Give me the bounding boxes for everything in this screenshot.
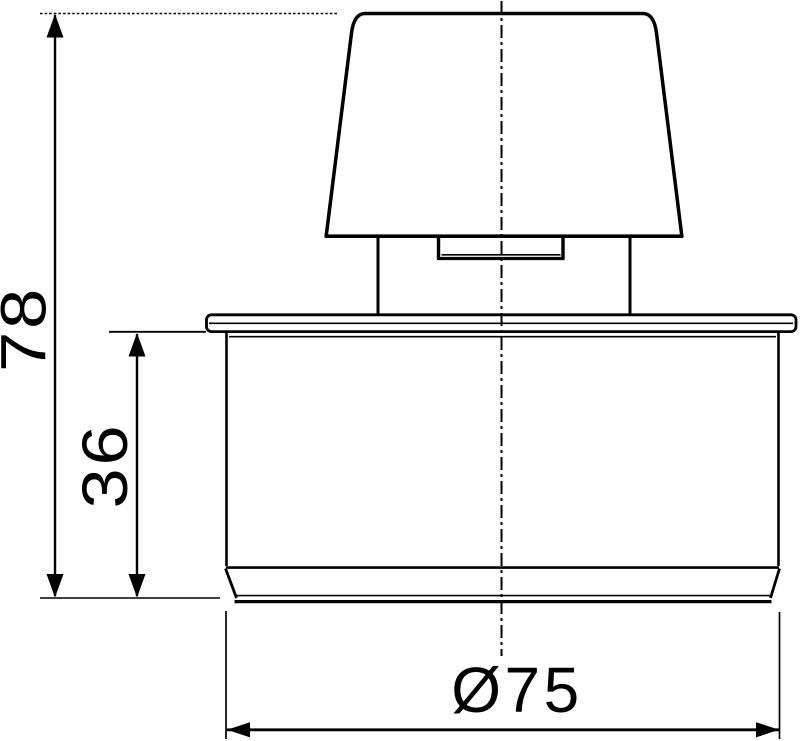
svg-text:78: 78 [0, 286, 60, 372]
svg-text:36: 36 [70, 422, 141, 508]
svg-text:Ø75: Ø75 [451, 654, 582, 726]
